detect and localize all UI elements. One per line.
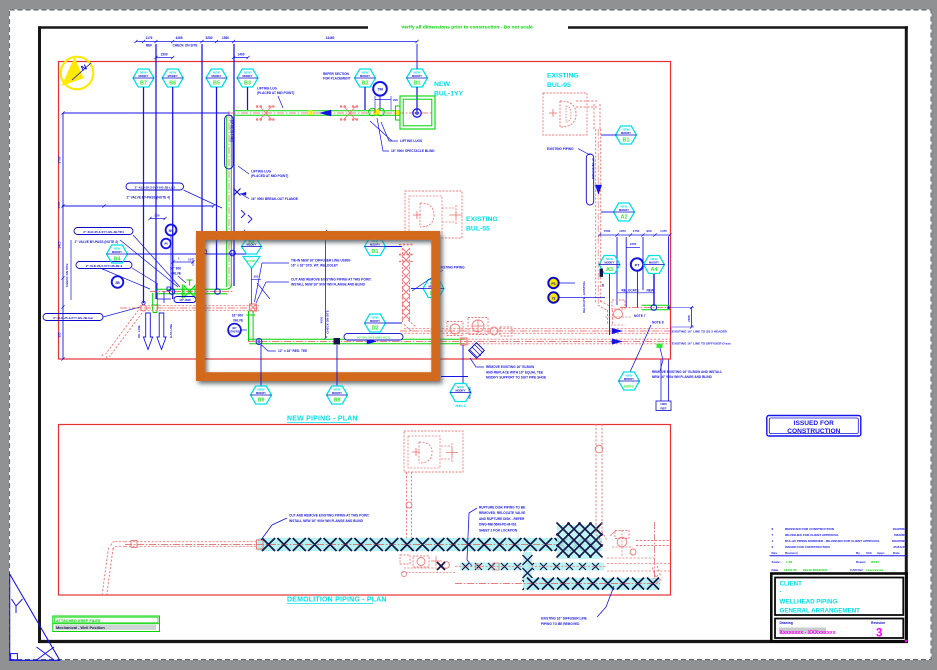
svg-text:500: 500 bbox=[154, 213, 159, 217]
svg-text:FOR PLACEMENT: FOR PLACEMENT bbox=[323, 77, 351, 81]
svg-text:EXISTING: EXISTING bbox=[466, 216, 498, 223]
svg-text:MODIFY: MODIFY bbox=[360, 74, 370, 78]
svg-text:2B: 2B bbox=[115, 281, 120, 285]
svg-text:xxxxxxxxxx: xxxxxxxxxx bbox=[866, 568, 883, 572]
svg-text:16"-OIL-25-3-0951-HC11: 16"-OIL-25-3-0951-HC11 bbox=[357, 335, 391, 339]
svg-text:GAS LINE: GAS LINE bbox=[169, 324, 173, 338]
svg-text:REISSUED FOR CONSTRUCTION: REISSUED FOR CONSTRUCTION bbox=[785, 527, 835, 531]
svg-text:BUL-55: BUL-55 bbox=[466, 226, 490, 233]
svg-text:AND REPLACE WITH 16" EQUAL TEE: AND REPLACE WITH 16" EQUAL TEE bbox=[486, 370, 543, 374]
svg-text:RELOCATE: RELOCATE bbox=[622, 289, 639, 293]
svg-text:2"-XLD-25-3-0YY-HS-JB-TR4: 2"-XLD-25-3-0YY-HS-JB-TR4 bbox=[83, 230, 124, 234]
svg-text:1400: 1400 bbox=[237, 52, 244, 56]
svg-text:MODIFY: MODIFY bbox=[168, 74, 178, 78]
svg-text:B6: B6 bbox=[169, 81, 176, 87]
svg-text:REF: REF bbox=[661, 406, 667, 410]
svg-text:(BY: (BY bbox=[232, 326, 237, 330]
svg-text:ISSUED FOR: ISSUED FOR bbox=[794, 420, 835, 427]
svg-text:LIFTING LUGS: LIFTING LUGS bbox=[400, 139, 422, 143]
svg-text:MODIFY: MODIFY bbox=[256, 391, 266, 395]
svg-text:7M: 7M bbox=[377, 87, 383, 92]
svg-text:995: 995 bbox=[58, 332, 62, 338]
svg-text:Revision: Revision bbox=[785, 551, 798, 555]
svg-text:REMOVE EXISTING 16" ELBOW: REMOVE EXISTING 16" ELBOW bbox=[486, 365, 534, 369]
svg-text:B9: B9 bbox=[258, 398, 265, 404]
svg-text:H30-2: H30-2 bbox=[624, 384, 634, 388]
svg-text:CHECK ON SITE: CHECK ON SITE bbox=[326, 310, 330, 334]
svg-text:3425: 3425 bbox=[58, 241, 62, 248]
svg-text:REF: REF bbox=[146, 43, 152, 47]
svg-text:MODIFY: MODIFY bbox=[619, 208, 629, 212]
svg-text:5280: 5280 bbox=[205, 36, 212, 40]
svg-text:OIL LINE: OIL LINE bbox=[137, 325, 141, 338]
svg-text:29APR06: 29APR06 bbox=[893, 527, 907, 531]
svg-text:29x42 28/04/2011: 29x42 28/04/2011 bbox=[803, 568, 828, 572]
svg-text:Revision: Revision bbox=[871, 621, 885, 625]
svg-text:RE-ISSUED FOR CLIENT APPROVAL: RE-ISSUED FOR CLIENT APPROVAL bbox=[785, 533, 839, 537]
svg-text:4060: 4060 bbox=[57, 201, 61, 208]
svg-text:MODIFY: MODIFY bbox=[370, 319, 380, 323]
svg-text:B1: B1 bbox=[623, 138, 630, 144]
svg-text:EXISTING 16" DIFFUSER LINE: EXISTING 16" DIFFUSER LINE bbox=[541, 616, 587, 620]
svg-text:Chk: Chk bbox=[866, 551, 872, 555]
svg-text:MODIFY: MODIFY bbox=[624, 377, 634, 381]
svg-text:MODIFY: MODIFY bbox=[138, 74, 148, 78]
svg-text:SHEET 2 FOR LOCATION: SHEET 2 FOR LOCATION bbox=[479, 528, 518, 532]
svg-text:1500: 1500 bbox=[160, 52, 167, 56]
svg-text:-: - bbox=[780, 589, 782, 596]
svg-text:MODIFY: MODIFY bbox=[211, 74, 221, 78]
svg-text:DWG-MB-5649-PD-M-061: DWG-MB-5649-PD-M-061 bbox=[479, 523, 517, 527]
svg-text:B8: B8 bbox=[334, 398, 341, 404]
svg-text:MODIFY: MODIFY bbox=[455, 388, 465, 392]
svg-text:1250: 1250 bbox=[630, 242, 637, 246]
svg-text:WTW: WTW bbox=[871, 560, 879, 564]
svg-text:1970: 1970 bbox=[619, 229, 626, 233]
svg-text:VALVE: VALVE bbox=[233, 319, 243, 323]
svg-text:1:50: 1:50 bbox=[786, 560, 792, 564]
svg-text:1568: 1568 bbox=[687, 315, 691, 322]
svg-text:NOTE 7: NOTE 7 bbox=[634, 314, 646, 318]
svg-text:CLIENT: CLIENT bbox=[780, 581, 803, 588]
svg-text:MODIFY: MODIFY bbox=[112, 250, 122, 254]
svg-text:1475: 1475 bbox=[660, 229, 667, 233]
svg-text:Scale:: Scale: bbox=[772, 560, 781, 564]
svg-text:16" 900# BREAK-OUT FLANGE: 16" 900# BREAK-OUT FLANGE bbox=[251, 197, 298, 201]
svg-text:Drawing: Drawing bbox=[780, 621, 793, 625]
svg-text:NOTE 8: NOTE 8 bbox=[652, 320, 664, 324]
svg-text:A3: A3 bbox=[606, 267, 613, 273]
svg-text:VALVE: VALVE bbox=[171, 272, 181, 276]
svg-text:8: 8 bbox=[772, 527, 774, 531]
svg-text:MODIFY: MODIFY bbox=[242, 74, 252, 78]
svg-text:WELLHEAD PIPING: WELLHEAD PIPING bbox=[780, 599, 838, 606]
svg-text:MODIFY SUPPORT TO SUIT PIPE SH: MODIFY SUPPORT TO SUIT PIPE SHOE bbox=[486, 376, 546, 380]
svg-text:CUT AND REMOVE EXISTING PIPING: CUT AND REMOVE EXISTING PIPING AT THIS P… bbox=[291, 277, 372, 281]
svg-text:EXISTING PIPING: EXISTING PIPING bbox=[547, 147, 574, 151]
svg-text:Verify all dimensions prior to: Verify all dimensions prior to construct… bbox=[401, 25, 533, 31]
svg-text:Date: Date bbox=[772, 568, 779, 572]
svg-text:200: 200 bbox=[393, 98, 398, 102]
svg-text:31JUL05: 31JUL05 bbox=[784, 568, 797, 572]
svg-text:2" VALVE BY-PASS (NOTE 4): 2" VALVE BY-PASS (NOTE 4) bbox=[127, 195, 170, 199]
svg-text:200: 200 bbox=[254, 275, 259, 279]
svg-text:(PLACED AT MID POINT): (PLACED AT MID POINT) bbox=[251, 174, 288, 178]
svg-text:16"-WW: 16"-WW bbox=[179, 298, 191, 302]
svg-text:Xxxxxxxx - XXXxxxxxx: Xxxxxxxx - XXXxxxxxx bbox=[780, 630, 836, 636]
svg-text:AND RUPTURE DISK - REFER: AND RUPTURE DISK - REFER bbox=[479, 517, 525, 521]
svg-text:900: 900 bbox=[646, 229, 651, 233]
svg-text:2"-XLD-25-3-0YY-HS-JB-3-B: 2"-XLD-25-3-0YY-HS-JB-3-B bbox=[53, 316, 93, 320]
svg-text:6: 6 bbox=[772, 545, 774, 549]
svg-text:EXISTING 16" LINE TO SS-2 HEAD: EXISTING 16" LINE TO SS-2 HEADER bbox=[672, 330, 728, 334]
svg-text:25JUL05: 25JUL05 bbox=[893, 545, 906, 549]
svg-text:1750: 1750 bbox=[633, 229, 640, 233]
svg-text:EXISTING 16" LINE TO DIFFUSER: EXISTING 16" LINE TO DIFFUSER D-xxx bbox=[672, 342, 731, 346]
svg-text:1176: 1176 bbox=[146, 36, 153, 40]
svg-text:OTHERS): OTHERS) bbox=[229, 329, 241, 333]
svg-text:16"-OIL-25-3-0951: 16"-OIL-25-3-0951 bbox=[230, 120, 234, 143]
svg-text:NEW PIPING - PLAN: NEW PIPING - PLAN bbox=[287, 416, 358, 423]
svg-text:BUL-95: BUL-95 bbox=[547, 82, 571, 89]
svg-text:ATTACHED XREF FILES: ATTACHED XREF FILES bbox=[56, 618, 101, 623]
svg-text:7MAR06: 7MAR06 bbox=[894, 533, 906, 537]
svg-text:16" 900# SPECTACLE BLIND: 16" 900# SPECTACLE BLIND bbox=[391, 149, 435, 153]
svg-text:CHECK ON SITE: CHECK ON SITE bbox=[65, 263, 69, 287]
svg-text:16"-OIL-25-3-0950: 16"-OIL-25-3-0950 bbox=[591, 158, 594, 180]
svg-text:D2: D2 bbox=[372, 326, 379, 332]
svg-text:7: 7 bbox=[772, 533, 774, 537]
svg-text:RELOCATE - EXISTING: RELOCATE - EXISTING bbox=[582, 281, 586, 313]
svg-text:A2: A2 bbox=[621, 215, 628, 221]
svg-text:10": 10" bbox=[188, 258, 193, 262]
svg-text:DEMOLITION PIPING - PLAN: DEMOLITION PIPING - PLAN bbox=[287, 596, 387, 603]
svg-text:LIFTING LUG: LIFTING LUG bbox=[251, 170, 272, 174]
svg-text:BUL-1YY: BUL-1YY bbox=[434, 91, 464, 98]
svg-text:MODIFY: MODIFY bbox=[370, 242, 380, 246]
svg-text:NEW: NEW bbox=[434, 81, 450, 88]
svg-text:By: By bbox=[856, 551, 860, 555]
svg-text:CHECK ON SITE: CHECK ON SITE bbox=[173, 43, 198, 47]
svg-text:NEW: NEW bbox=[647, 289, 654, 293]
svg-text:1560: 1560 bbox=[222, 36, 229, 40]
svg-text:Drawn: Drawn bbox=[856, 560, 866, 564]
svg-text:INSTALL NEW 16" 900# WN FLANGE: INSTALL NEW 16" 900# WN FLANGE AND BLIND bbox=[291, 283, 366, 287]
svg-text:12" x 16" RED. TEE: 12" x 16" RED. TEE bbox=[278, 349, 307, 353]
svg-text:Rev: Rev bbox=[772, 551, 778, 555]
svg-text:REMOVE EXISTING 16" ELBOW AND: REMOVE EXISTING 16" ELBOW AND INSTALL bbox=[652, 370, 722, 374]
svg-text:GENERAL ARRANGEMENT: GENERAL ARRANGEMENT bbox=[780, 608, 861, 615]
svg-text:FS: FS bbox=[551, 282, 556, 286]
svg-text:EXISTING PIPING: EXISTING PIPING bbox=[438, 266, 465, 270]
svg-text:NV: NV bbox=[169, 229, 174, 233]
svg-text:3: 3 bbox=[876, 628, 882, 640]
svg-text:INSTALL NEW 16" 900# WN FLANGE: INSTALL NEW 16" 900# WN FLANGE AND BLIND bbox=[289, 519, 364, 523]
svg-text:Date: Date bbox=[893, 551, 900, 555]
svg-text:BUL-96 PIPING MODIFIED - RE-IS: BUL-96 PIPING MODIFIED - RE-ISSUED FOR C… bbox=[785, 539, 880, 543]
svg-text:EXISTING: EXISTING bbox=[547, 73, 579, 80]
svg-text:LIFTING LUG: LIFTING LUG bbox=[257, 87, 278, 91]
svg-text:TIE-IN NEW 16" DIFFUSER LINE U: TIE-IN NEW 16" DIFFUSER LINE USING bbox=[291, 258, 351, 262]
svg-text:D1: D1 bbox=[372, 249, 379, 255]
svg-text:B4: B4 bbox=[114, 257, 121, 263]
svg-text:2"-XLD-25-3-0YY-HS-JB-LDJ: 2"-XLD-25-3-0YY-HS-JB-LDJ bbox=[135, 185, 176, 189]
svg-text:4265: 4265 bbox=[175, 36, 182, 40]
svg-text:OIL LINE: OIL LINE bbox=[468, 387, 472, 399]
svg-text:1: 1 bbox=[772, 539, 774, 543]
svg-text:16" 900: 16" 900 bbox=[232, 313, 243, 317]
svg-text:REFER SECTION: REFER SECTION bbox=[323, 72, 350, 76]
svg-text:RUPTURE DISK PIPING TO BE: RUPTURE DISK PIPING TO BE bbox=[479, 506, 525, 510]
svg-text:REMOVED. RELOCATE VALVE: REMOVED. RELOCATE VALVE bbox=[479, 511, 525, 515]
svg-text:MODIFY: MODIFY bbox=[649, 260, 659, 264]
svg-text:A4: A4 bbox=[651, 267, 658, 273]
svg-text:30: 30 bbox=[601, 283, 605, 287]
svg-text:MODIFY: MODIFY bbox=[621, 131, 631, 135]
svg-text:2"-XLD-25-3-0YY-HS-JB-3: 2"-XLD-25-3-0YY-HS-JB-3 bbox=[86, 264, 123, 268]
svg-text:B2: B2 bbox=[362, 81, 369, 87]
svg-text:EXIST: EXIST bbox=[247, 259, 256, 263]
svg-text:8OAPR06: 8OAPR06 bbox=[892, 539, 906, 543]
svg-text:MODIFY: MODIFY bbox=[604, 260, 614, 264]
svg-text:2" VALVE BY-PASS (NOTE 4): 2" VALVE BY-PASS (NOTE 4) bbox=[75, 240, 118, 244]
svg-text:D6: D6 bbox=[249, 241, 255, 246]
svg-text:MODIFY: MODIFY bbox=[412, 74, 422, 78]
svg-text:14460: 14460 bbox=[326, 36, 335, 40]
svg-text:8700: 8700 bbox=[58, 156, 62, 163]
svg-text:MODIFY: MODIFY bbox=[332, 391, 342, 395]
svg-text:B1: B1 bbox=[414, 81, 421, 87]
svg-text:Mechanical - Well Position: Mechanical - Well Position bbox=[56, 625, 105, 630]
svg-text:73: 73 bbox=[552, 296, 556, 300]
svg-text:16" x 16" STD. WT. WELDOLET: 16" x 16" STD. WT. WELDOLET bbox=[291, 264, 338, 268]
svg-text:ISSUED FOR CONSTRUCTION: ISSUED FOR CONSTRUCTION bbox=[785, 545, 830, 549]
svg-text:PIPING TO BE REMOVED: PIPING TO BE REMOVED bbox=[541, 622, 580, 626]
svg-text:CUT AND REMOVE EXISTING PIPING: CUT AND REMOVE EXISTING PIPING AT THIS P… bbox=[289, 513, 370, 517]
svg-text:PT: PT bbox=[635, 263, 641, 267]
svg-text:7500: 7500 bbox=[604, 229, 611, 233]
svg-text:B3: B3 bbox=[244, 81, 251, 87]
svg-text:B5: B5 bbox=[213, 81, 220, 87]
svg-text:PI: PI bbox=[164, 242, 167, 246]
svg-text:Appr.: Appr. bbox=[877, 551, 885, 555]
svg-text:H30-1: H30-1 bbox=[456, 404, 466, 408]
svg-text:CAD Ref: CAD Ref bbox=[850, 568, 864, 572]
svg-text:(PLACED AT MID POINT): (PLACED AT MID POINT) bbox=[257, 91, 294, 95]
svg-text:CONSTRUCTION: CONSTRUCTION bbox=[787, 428, 840, 435]
svg-text:4500: 4500 bbox=[320, 316, 324, 323]
svg-text:16" 900: 16" 900 bbox=[170, 266, 181, 270]
svg-text:B7: B7 bbox=[140, 81, 147, 87]
